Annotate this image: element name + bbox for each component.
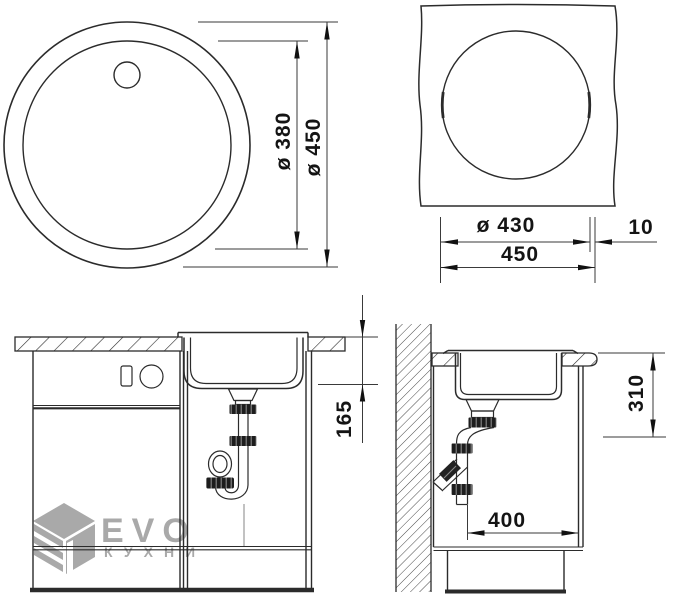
wall-section-hatch <box>396 324 431 592</box>
cutout-dimension-lines <box>441 217 658 283</box>
dim-label-overall-width: 450 <box>501 243 539 267</box>
bowl-inner-wall-side <box>461 353 557 395</box>
cutout-side-mark-left <box>442 92 443 118</box>
bowl-inner-wall-front <box>191 338 298 384</box>
slip-nut <box>452 444 473 454</box>
cutout-side-mark-right <box>589 92 590 118</box>
dim-label-edge-offset: 10 <box>628 216 653 240</box>
dim-label-bowl-depth: 165 <box>333 400 357 438</box>
slip-nut <box>230 405 257 415</box>
cutout-template-drawing <box>419 5 657 284</box>
slip-nut <box>469 418 497 428</box>
cutout-circle <box>442 31 590 179</box>
slip-nut <box>206 478 234 489</box>
slip-nut <box>452 484 473 495</box>
dim-label-cabinet-depth: 400 <box>488 509 526 533</box>
front-view-drawing <box>15 295 378 592</box>
countertop-section-front <box>562 353 597 366</box>
countertop-section-back <box>432 353 458 366</box>
slip-nut <box>230 436 257 446</box>
side-view-drawing <box>396 324 666 592</box>
drain-assembly-front <box>206 389 258 546</box>
cabinet-handle-round <box>140 365 163 388</box>
sink-installation-diagram: EVO КУХНИ <box>0 0 673 600</box>
sink-bowl-circle <box>23 41 231 249</box>
countertop-right-section <box>308 337 345 351</box>
technical-drawing <box>0 0 673 600</box>
overflow-hole <box>114 62 140 88</box>
drain-assembly-side <box>433 400 499 505</box>
bowl-outer-wall-side <box>456 353 562 400</box>
dim-label-outer-diameter: ø 450 <box>302 118 326 177</box>
cabinet-handle-square <box>121 366 132 386</box>
sink-cabinet-front <box>30 351 314 592</box>
countertop-panel-outline <box>419 5 617 207</box>
left-cabinet-front <box>33 351 180 592</box>
sink-outer-rim-circle <box>4 22 250 268</box>
bowl-outer-wall-front <box>184 338 303 389</box>
sink-rim-front <box>178 333 308 338</box>
angled-slip-nut <box>439 460 461 482</box>
sink-rim-side <box>443 351 578 354</box>
dim-label-inner-diameter: ø 380 <box>272 112 296 171</box>
dim-label-cutout-diameter: ø 430 <box>477 214 536 238</box>
countertop-left-section <box>15 337 182 351</box>
dim-label-under-counter: 310 <box>625 374 649 412</box>
